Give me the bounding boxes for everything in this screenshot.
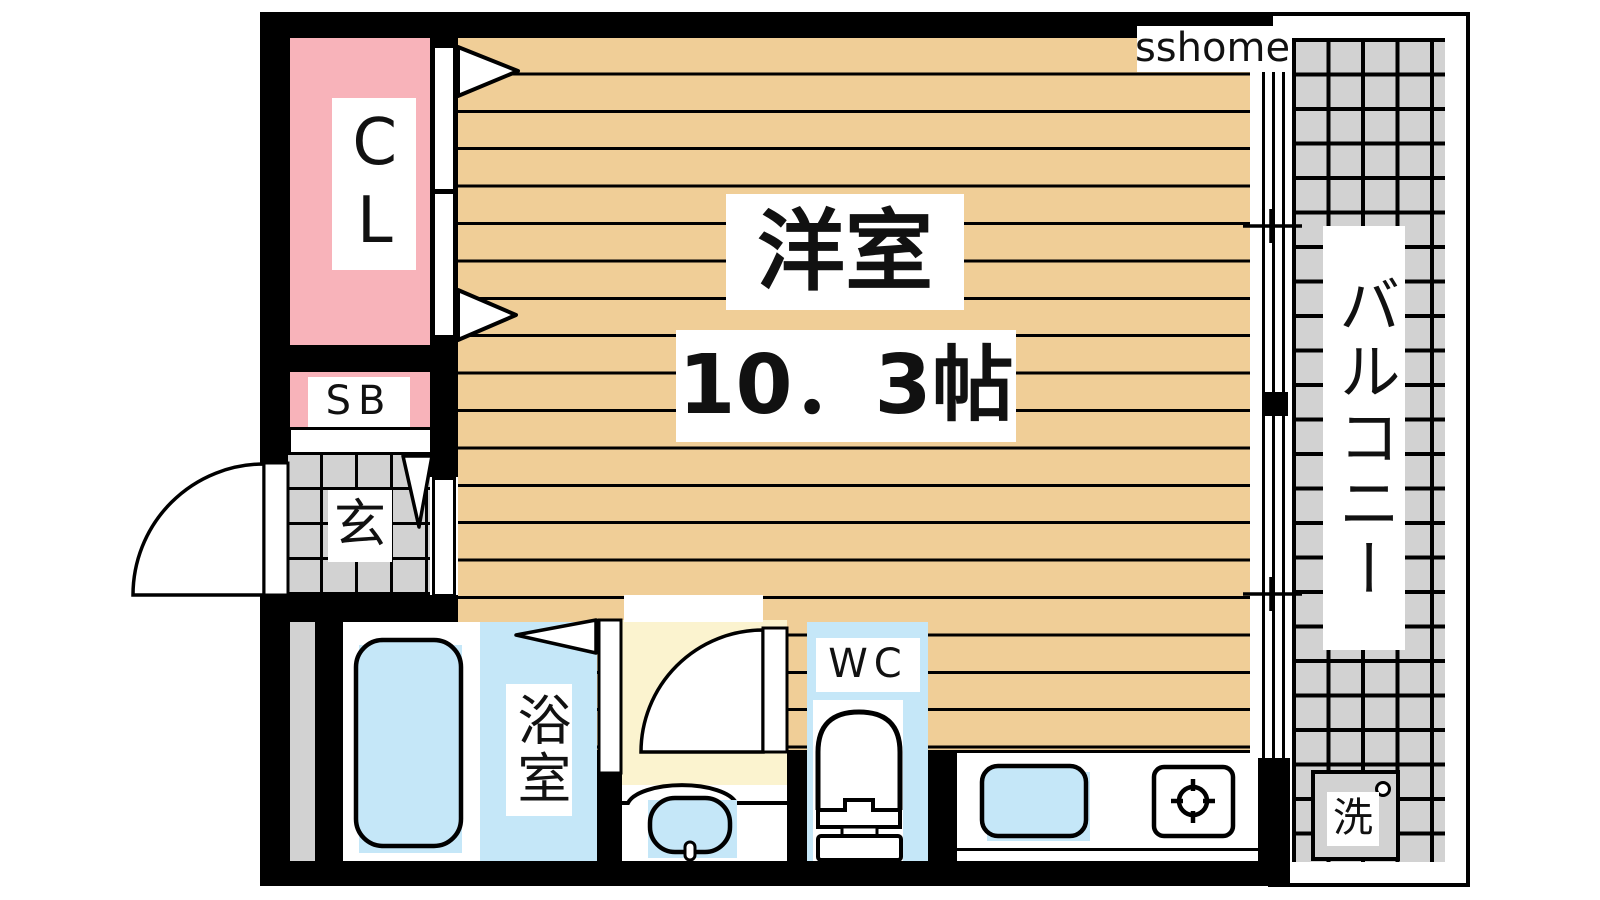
floor-plan: CL SB 玄 洋室 10．3帖 浴室 WC バルコニー 洗 sshome xyxy=(0,0,1600,900)
bathtub-icon xyxy=(356,640,462,853)
main-room-size-label: 10．3帖 xyxy=(676,330,1016,442)
bathroom-label: 浴室 xyxy=(506,684,572,816)
entrance-door xyxy=(133,463,288,595)
wash-basin-icon xyxy=(622,785,787,860)
gas-stove-icon xyxy=(1154,767,1233,836)
shoe-box-label: SB xyxy=(308,377,410,427)
balcony-label: バルコニー xyxy=(1323,226,1405,650)
main-room-label: 洋室 xyxy=(726,194,964,310)
closet-door-arrow-icon xyxy=(458,47,518,340)
wc-label: WC xyxy=(816,638,920,692)
entrance-step-arrow-icon xyxy=(403,456,432,527)
window-tick-icon xyxy=(1243,209,1302,611)
toilet-icon xyxy=(813,700,903,861)
kitchen-sink-icon xyxy=(982,766,1090,841)
closet-label: CL xyxy=(332,98,416,270)
entrance-label: 玄 xyxy=(328,490,392,562)
watermark: sshome xyxy=(1137,26,1288,72)
laundry-label: 洗 xyxy=(1327,792,1379,846)
washroom-door xyxy=(641,628,787,752)
